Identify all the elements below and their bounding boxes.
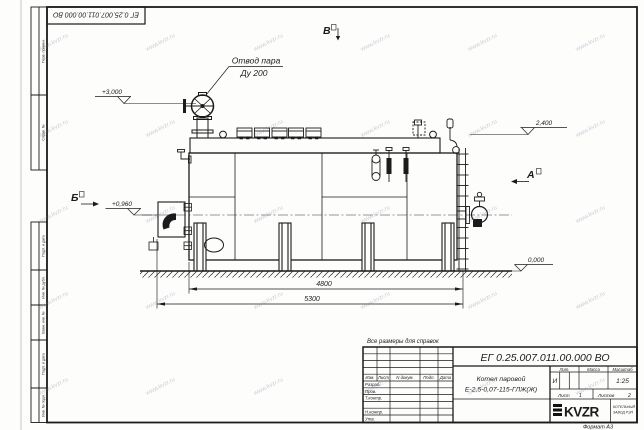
top-hatches: [237, 128, 321, 139]
margin-label: Подп. и дата: [42, 235, 46, 256]
margin-label: Справ. №: [42, 124, 46, 140]
tb-sheet-value: 1: [579, 393, 582, 399]
drawing-canvas: Перв. примен. Справ. № Подп. и дата Инв.…: [0, 0, 644, 430]
margin-label: Инв. № дубл.: [42, 276, 46, 298]
tb-row-prov: Пров.: [365, 389, 376, 394]
tb-product-name-2: Е-2,5-0,07-115-ГЛЖ(Ж): [465, 387, 537, 394]
lifting-eyelet-right: [429, 131, 437, 138]
blowdown-valve: [457, 192, 488, 227]
margin-label: Инв. № подл.: [42, 394, 46, 416]
tb-designation: ЕГ 0.25.007.011.00.000 ВО: [480, 352, 609, 364]
logo-caption-1: КОТЕЛЬНЫЙ: [613, 405, 636, 409]
tb-litera-label: Лит.: [558, 367, 569, 372]
steam-outlet-label-line1: Отвод пара: [232, 56, 281, 66]
tb-scale-value: 1:25: [616, 378, 629, 385]
tb-col-izm: Изм.: [365, 375, 374, 380]
lifting-eyelet-left: [219, 131, 227, 138]
boiler-side-view: [140, 93, 512, 278]
margin-label: Подп. и дата: [42, 353, 46, 374]
tb-col-list: Лист: [377, 375, 389, 380]
logo-text: KVZR: [564, 405, 600, 420]
tb-product-name-1: Котел паровой: [477, 375, 526, 383]
steam-outlet-label-line2: Ду 200: [240, 68, 268, 78]
dim-supports-span: 4800: [316, 281, 332, 288]
ground-line: [140, 271, 512, 278]
tb-row-tkontr: Т.контр.: [365, 396, 382, 401]
tb-col-podp: Подп.: [423, 375, 434, 380]
reference-note: Все размеры для справок: [367, 339, 440, 345]
view-arrows: [80, 25, 542, 207]
tb-col-data: Дата: [439, 375, 452, 380]
elevation-drum-top-value: 2,400: [535, 120, 553, 127]
elevation-ground-value: 0,000: [528, 257, 545, 264]
burner: [149, 202, 185, 250]
steam-outlet-callout: Отвод пара Ду 200: [206, 56, 283, 96]
margin-label: Перв. примен.: [42, 39, 46, 63]
view-b-arrow: [80, 192, 100, 207]
view-v-label: В: [323, 25, 331, 37]
drawing-sheet: www.kvzr.ruwww.kvzr.ruwww.kvzr.ruwww.kvz…: [0, 0, 644, 430]
view-v-arrow: [332, 25, 341, 41]
tb-row-nkontr: Н.контр.: [365, 409, 383, 414]
elevation-ground: [512, 265, 553, 272]
tb-mass-label: Масса: [587, 367, 600, 372]
view-b-label: Б: [71, 192, 79, 204]
tb-row-razrab: Разраб.: [365, 382, 381, 387]
tb-sheets-label: Листов: [597, 393, 615, 398]
format-note: Формат А3: [583, 425, 614, 430]
view-a-arrow: [511, 169, 541, 185]
tb-sheets-value: 2: [627, 393, 631, 399]
margin-label: Взам. инв. №: [42, 311, 46, 333]
elevation-burner-axis-value: +0,960: [112, 201, 132, 208]
elevation-valve-top: [95, 97, 196, 104]
view-a-label: А: [526, 169, 535, 181]
support-legs: [194, 223, 454, 271]
elevation-burner-axis: [106, 209, 159, 216]
tb-row-utv: Утв.: [365, 416, 375, 421]
dim-overall-length: 5300: [304, 296, 320, 303]
top-stamp-designation: ЕГ 0.25.007.011.00.000 ВО: [52, 11, 139, 18]
elevation-valve-top-value: +3,000: [102, 89, 122, 96]
tb-sheet-label: Лист: [557, 393, 570, 398]
tb-scale-label: Масштаб: [612, 367, 633, 372]
margin-column-labels: Перв. примен. Справ. № Подп. и дата Инв.…: [42, 39, 46, 417]
manhole: [205, 238, 224, 252]
company-logo: KVZR КОТЕЛЬНЫЙ ЗАВОД РЭП: [553, 404, 636, 420]
elevation-drum-top: [470, 128, 567, 135]
tb-col-ndokum: N докум.: [396, 375, 413, 380]
ladder: [457, 148, 469, 271]
logo-caption-2: ЗАВОД РЭП: [613, 411, 634, 415]
steam-valve: [183, 93, 214, 139]
tb-litera-value: И: [552, 378, 557, 385]
elevation-marks: [95, 97, 567, 272]
